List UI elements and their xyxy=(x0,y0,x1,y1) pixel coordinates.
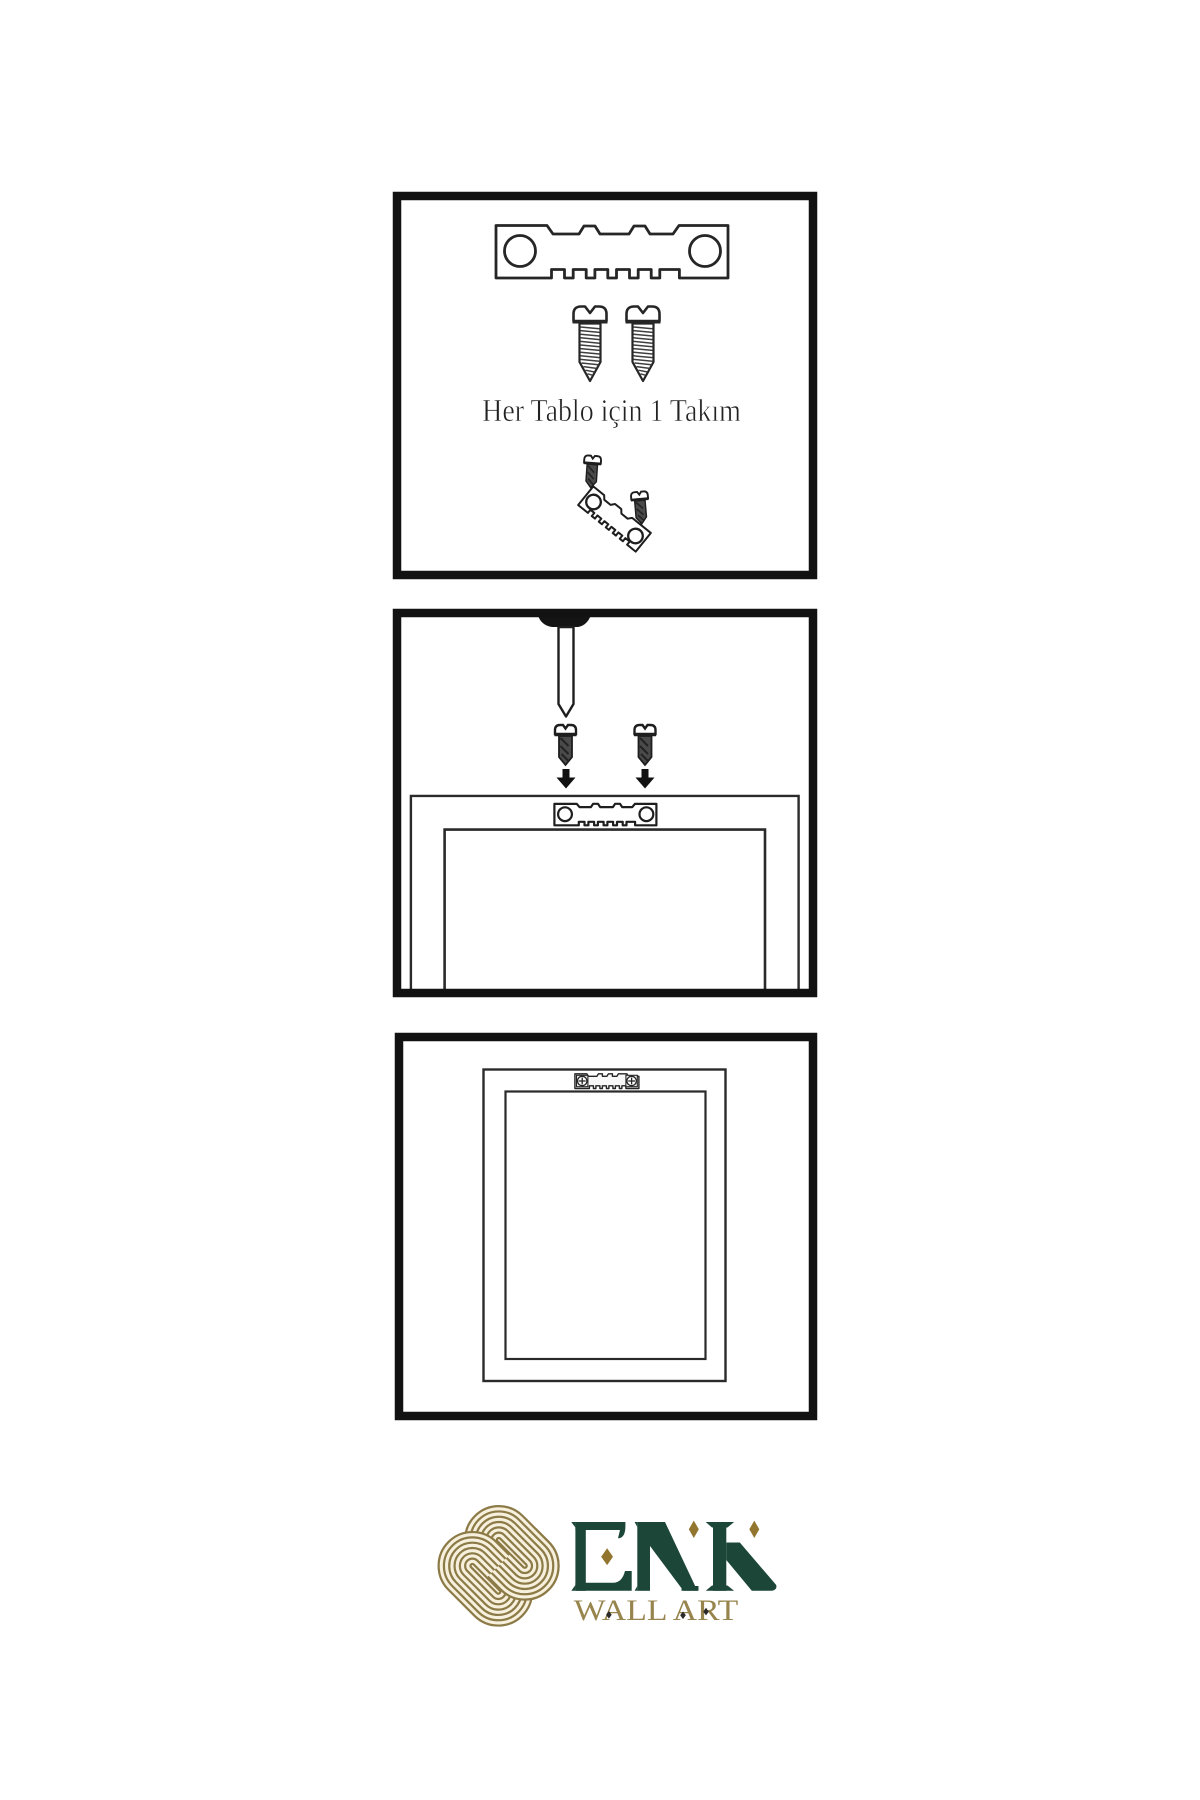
svg-text:WALL ART: WALL ART xyxy=(574,1594,738,1627)
svg-text:Her Tablo için 1 Takım: Her Tablo için 1 Takım xyxy=(482,393,741,428)
